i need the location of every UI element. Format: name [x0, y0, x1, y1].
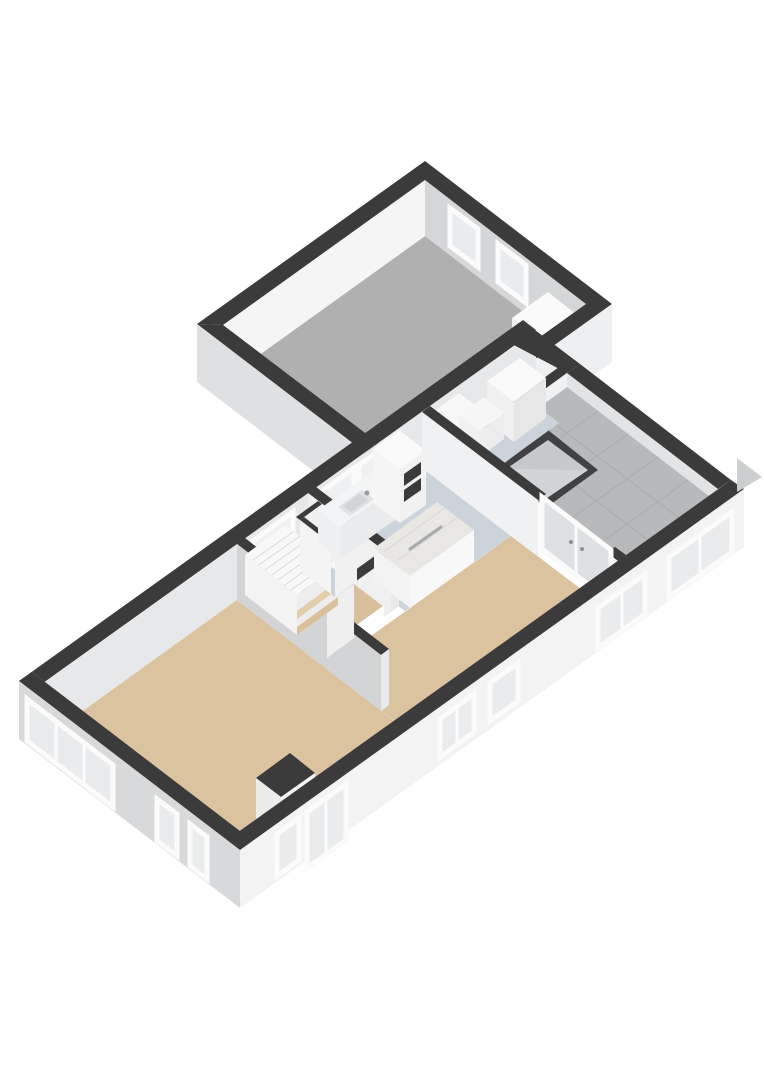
kitchen-faucet: [365, 491, 370, 496]
french-door-handle-2: [580, 547, 584, 551]
exterior-wall-stub: [737, 458, 762, 492]
floorplan-viewport: [0, 0, 764, 1080]
left-window-3: [190, 824, 207, 879]
floorplan-3d: [0, 0, 764, 1080]
french-door-handle-1: [569, 540, 573, 544]
wall-living-dining-end-face: [381, 649, 389, 711]
